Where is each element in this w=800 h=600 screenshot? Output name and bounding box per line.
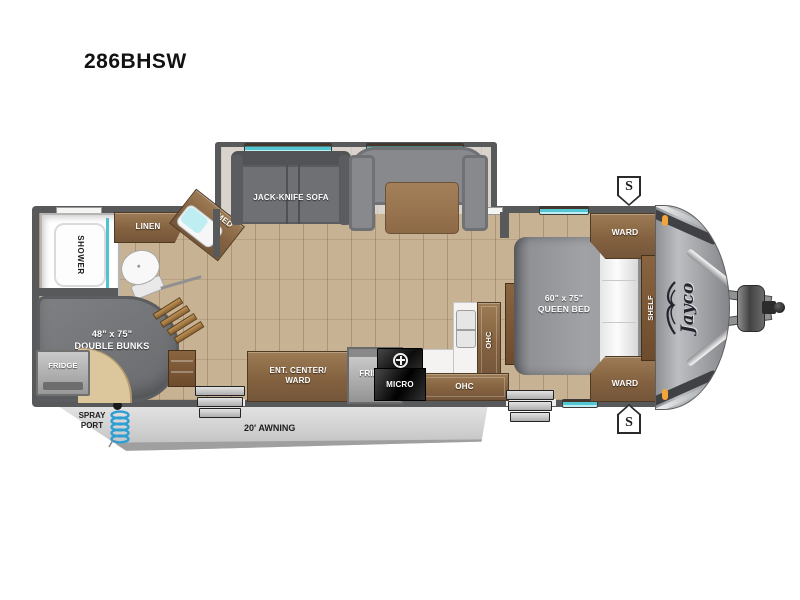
bunk-ladder [150,300,210,344]
linen-label: LINEN [119,222,177,232]
jack-knife-sofa: JACK-KNIFE SOFA [231,151,351,227]
propane-cover [737,285,765,332]
awning-label: 20' AWNING [244,423,295,433]
bedroom-window-top [539,206,589,215]
jack-knife-sofa-label: JACK-KNIFE SOFA [231,193,351,203]
shelf-label: SHELF [646,290,656,326]
speaker-badge-top: S [617,176,641,206]
speaker-badge-bottom: S [617,404,641,434]
speaker-badge-top-letter: S [617,179,641,195]
bath-wall-stub [213,209,220,257]
burner-icon [393,353,408,368]
hitch-ball [774,302,785,313]
ward-bottom: WARD [590,356,660,402]
shower-label: SHOWER [75,231,85,279]
nightstand [168,350,196,387]
marker-light-bottom [662,389,668,400]
ent-center-ward-label: ENT. CENTER/ WARD [248,366,348,386]
queen-bed-name: QUEEN BED [518,304,610,315]
spray-port-hose-icon [107,409,133,449]
queen-bed-label: 60" x 75" QUEEN BED [518,293,610,315]
dinette-table [385,182,459,234]
ward-top: WARD [590,213,660,259]
jayco-logo: Jayco [678,278,698,338]
ent-center-ward: ENT. CENTER/ WARD [247,351,349,402]
speaker-badge-bottom-letter: S [617,415,641,431]
kitchen-sink [456,310,476,348]
ward-bottom-label: WARD [591,378,659,388]
ohc-upper-label: OHC [484,326,494,354]
shower-glass [106,218,109,292]
ent-center-line1: ENT. CENTER/ [248,366,348,376]
entry-steps-main [196,386,244,419]
ohc-upper-cabinet: OHC [477,302,501,378]
queen-bed-size: 60" x 75" [518,293,610,304]
microwave: MICRO [374,368,426,401]
entry-steps-bedroom [507,390,553,423]
shower: SHOWER [40,213,120,297]
floorplan-canvas: 286BHSW 20' AWNING SPRAY PORT [0,0,800,600]
bedroom-wall-stub [500,212,509,238]
eagle-icon [662,278,678,338]
microwave-label: MICRO [375,380,425,390]
bunk-fridge-label: FRIDGE [38,361,88,371]
ward-top-label: WARD [591,227,659,237]
bath-wall [34,288,118,296]
ohc-lower-label: OHC [421,382,508,392]
ohc-lower-cabinet: OHC [420,373,509,401]
bunk-fridge: FRIDGE [36,350,90,396]
marker-light-top [662,215,668,226]
awning-roller [116,439,488,450]
front-cap: Jayco [655,205,730,410]
ent-center-line2: WARD [248,376,348,386]
model-title: 286BHSW [84,50,187,74]
